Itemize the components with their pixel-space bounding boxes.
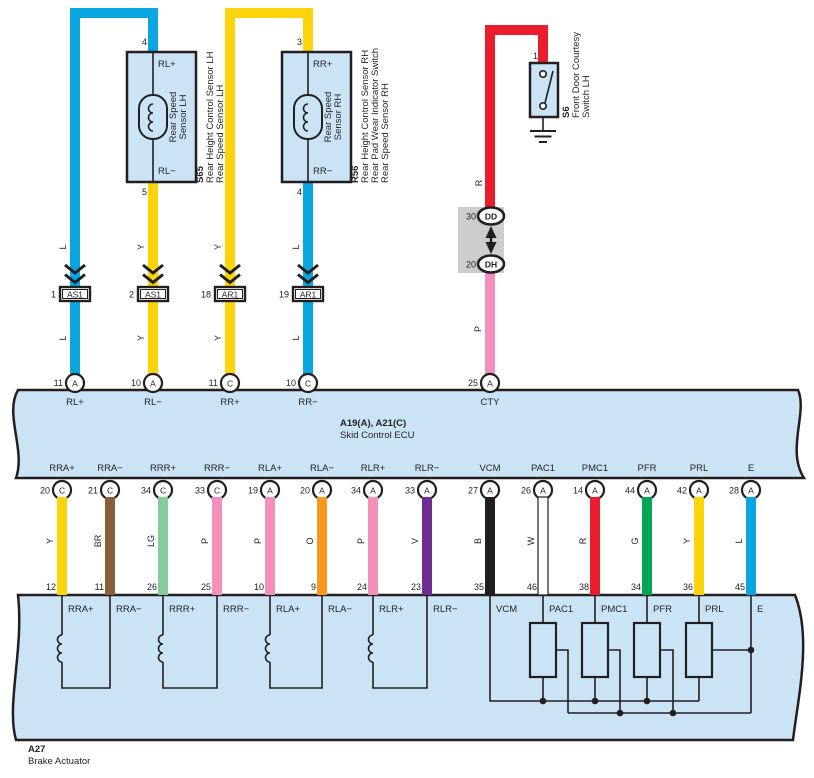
- wire-color-code: Y: [45, 538, 55, 544]
- ecu-terminal-label: RR+: [220, 397, 240, 408]
- sensor-box-label: Rear Speed Sensor LH: [168, 92, 189, 143]
- wire-color-code: B: [473, 538, 483, 544]
- switch-contact-top: [540, 71, 546, 77]
- sensor-terminal-bottom: RL−: [158, 166, 176, 177]
- ecu-pin-number: 11: [209, 378, 218, 388]
- ecu-pin-number: 20: [300, 486, 310, 496]
- actuator-pin-number: 26: [147, 582, 157, 592]
- ecu-pin-number: 34: [141, 486, 151, 496]
- resistor-box-pmc1: [582, 623, 608, 677]
- sensor-pin-top: 3: [297, 37, 302, 47]
- ecu-pin-number: 11: [54, 378, 63, 388]
- ecu-pin-connector-letter: A: [644, 486, 650, 496]
- ecu-terminal-label: PAC1: [531, 463, 555, 474]
- actuator-terminal-label: RRR+: [169, 604, 196, 615]
- actuator-pin-number: 24: [357, 582, 367, 592]
- resistor-box-pfr: [634, 623, 660, 677]
- ecu-pin-connector-letter: C: [107, 486, 113, 496]
- wire: [538, 497, 548, 595]
- ecu-terminal-label: RL+: [66, 397, 84, 408]
- wire-color-code: P: [473, 326, 483, 332]
- ecu-pin-number: 10: [286, 378, 296, 388]
- actuator-pin-number: 23: [411, 582, 421, 592]
- ecu-pin-connector-letter: C: [227, 379, 233, 389]
- ecu-pin-number: 33: [195, 486, 205, 496]
- sensor-box-label-line2: Sensor RH: [333, 94, 344, 141]
- actuator-pin-number: 46: [527, 582, 537, 592]
- ecu-terminal-label: PRL: [690, 463, 708, 474]
- ecu-pin-connector-letter: A: [487, 379, 493, 389]
- actuator-pin-number: 35: [474, 582, 484, 592]
- wire-color-code: W: [526, 536, 536, 545]
- actuator-pin-number: 34: [631, 582, 641, 592]
- wire: [158, 497, 168, 595]
- wire: [694, 497, 704, 595]
- connector-pin-number: 18: [201, 290, 211, 300]
- ecu-terminal-label: RLA+: [258, 463, 282, 474]
- wiring-diagram: A19(A), A21(C) Skid Control ECU 11 A RL+…: [0, 0, 814, 773]
- sensor-desc-line3: Rear Speed Sensor RH: [380, 83, 391, 183]
- connector-pin-number: 2: [129, 290, 134, 300]
- actuator-pin-number: 36: [683, 582, 693, 592]
- sensor-terminal-bottom: RR−: [313, 166, 333, 177]
- actuator-terminal-label: RRA−: [116, 604, 142, 615]
- wire-color-code: L: [58, 244, 68, 249]
- wire-color-code: LG: [146, 535, 156, 547]
- ecu-pin-number: 20: [40, 486, 50, 496]
- actuator-pin-number: 11: [95, 582, 104, 592]
- resistor-box-prl: [686, 623, 712, 677]
- wire: [422, 497, 432, 595]
- sensor-box-label: Rear Speed Sensor RH: [323, 92, 344, 143]
- wire-color-code: Y: [213, 335, 223, 341]
- actuator-pin-number: 9: [311, 582, 316, 592]
- ecu-pin-connector-letter: A: [696, 486, 702, 496]
- wire-color-code: V: [410, 538, 420, 544]
- wire: [317, 497, 327, 595]
- ecu-pin-connector-letter: A: [150, 379, 156, 389]
- ecu-pin-connector-letter: A: [370, 486, 376, 496]
- wire-color-code: R: [474, 179, 484, 186]
- connector-pin-number: 1: [51, 290, 56, 300]
- rear-speed-sensor-lh: 4 RL+ RL− 5 Rear Speed Sensor LH S65 Rea…: [127, 37, 226, 197]
- sensor-pin-bottom: 4: [297, 187, 302, 197]
- actuator-pin-number: 25: [201, 582, 211, 592]
- ecu-terminal-label: CTY: [481, 397, 501, 408]
- wire: [642, 497, 652, 595]
- switch-pin-number: 1: [533, 51, 538, 61]
- wire-color-code: G: [630, 537, 640, 544]
- ecu-title: A19(A), A21(C): [340, 418, 406, 429]
- wire-color-code: Y: [213, 244, 223, 250]
- ecu-terminal-label: RLR+: [361, 463, 386, 474]
- ecu-terminal-label: E: [748, 463, 754, 474]
- junction-dot: [540, 698, 547, 705]
- actuator-name: Brake Actuator: [28, 756, 90, 767]
- junction-oval-label: DD: [485, 212, 497, 222]
- junction-dot: [617, 710, 624, 717]
- actuator-pin-number: 45: [735, 582, 745, 592]
- ecu-pin-connector-letter: A: [424, 486, 430, 496]
- wire-color-code: L: [58, 335, 68, 340]
- junction-dot: [592, 698, 599, 705]
- junction-oval-label: DH: [485, 260, 497, 270]
- ecu-pin-number: 26: [521, 486, 531, 496]
- ecu-terminal-label: PMC1: [582, 463, 608, 474]
- wire-color-code: Y: [136, 244, 146, 250]
- switch-desc-line2: Switch LH: [581, 75, 592, 118]
- ecu-pin-connector-letter: C: [305, 379, 311, 389]
- actuator-code: A27: [28, 744, 45, 755]
- actuator-terminal-label: PFR: [653, 604, 672, 615]
- ecu-pin-connector-letter: C: [59, 486, 65, 496]
- actuator-terminal-label: RLR+: [379, 604, 404, 615]
- wire: [590, 497, 600, 595]
- ecu-terminal-label: RRR−: [204, 463, 231, 474]
- ecu-pin-number: 44: [625, 486, 635, 496]
- ecu-pin-connector-letter: A: [267, 486, 273, 496]
- actuator-terminal-label: PAC1: [549, 604, 573, 615]
- actuator-terminal-label: RLR−: [433, 604, 458, 615]
- actuator-terminal-label: E: [757, 604, 763, 615]
- actuator-pin-number: 38: [579, 582, 589, 592]
- wire-color-code: Y: [682, 538, 692, 544]
- ecu-terminal-label: RRA−: [97, 463, 123, 474]
- wire: [105, 497, 115, 595]
- actuator-terminal-label: RLA−: [328, 604, 352, 615]
- ecu-terminal-label: RRR+: [150, 463, 177, 474]
- ecu-pin-connector-letter: C: [214, 486, 220, 496]
- ecu-pin-number: 10: [131, 378, 141, 388]
- actuator-pin-number: 10: [254, 582, 264, 592]
- ecu-pin-connector-letter: A: [72, 379, 78, 389]
- ecu-pin-number: 21: [88, 486, 98, 496]
- wire-color-code: L: [734, 538, 744, 543]
- connector-label: AS1: [145, 290, 161, 300]
- wiring-diagram-page: A19(A), A21(C) Skid Control ECU 11 A RL+…: [0, 0, 814, 773]
- wire-color-code: BR: [93, 534, 103, 547]
- wire-color-code: P: [253, 538, 263, 544]
- sensor-pin-top: 4: [142, 37, 147, 47]
- connector-label: AS1: [67, 290, 83, 300]
- ecu-pin-connector-letter: A: [319, 486, 325, 496]
- ecu-terminal-label: PFR: [638, 463, 657, 474]
- resistor-box-pac1: [530, 623, 556, 677]
- ecu-subtitle: Skid Control ECU: [340, 430, 415, 441]
- wire-color-code: R: [578, 537, 588, 544]
- actuator-band: [13, 595, 803, 740]
- ecu-pin-number: 42: [677, 486, 687, 496]
- ecu-pin-number: 27: [468, 486, 478, 496]
- sensor-box-label-line2: Sensor LH: [178, 94, 189, 139]
- connector-label: AR1: [222, 290, 239, 300]
- ecu-pin-connector-letter: A: [592, 486, 598, 496]
- ecu-terminal-label: RL−: [144, 397, 162, 408]
- wire: [265, 497, 275, 595]
- actuator-terminal-label: PRL: [705, 604, 723, 615]
- ecu-pin-number: 34: [351, 486, 361, 496]
- ecu-terminal-label: RRA+: [49, 463, 75, 474]
- wire-color-code: Y: [136, 335, 146, 341]
- wire-color-code: L: [291, 335, 301, 340]
- ecu-pin-number: 25: [468, 378, 478, 388]
- junction-pin-number: 20: [466, 260, 476, 270]
- wire: [485, 497, 495, 595]
- ecu-pin-number: 14: [573, 486, 583, 496]
- sensor-terminal-top: RL+: [158, 59, 176, 70]
- junction-dot: [644, 698, 651, 705]
- ecu-terminal-label: RLR−: [415, 463, 440, 474]
- wire: [57, 497, 67, 595]
- ecu-terminal-label: VCM: [479, 463, 500, 474]
- wire-color-code: P: [200, 538, 210, 544]
- junction-block-dd-dh: DD 30 DH 20: [458, 207, 504, 273]
- ecu-terminal-label: RLA−: [310, 463, 334, 474]
- actuator-terminal-label: RLA+: [276, 604, 300, 615]
- ecu-pin-number: 19: [248, 486, 258, 496]
- junction-dot: [670, 710, 677, 717]
- sensor-pin-bottom: 5: [142, 187, 147, 197]
- ecu-pin-number: 28: [729, 486, 739, 496]
- wire-color-code: P: [356, 538, 366, 544]
- ecu-terminal-label: RR−: [298, 397, 318, 408]
- rear-speed-sensor-rh: 3 RR+ RR− 4 Rear Speed Sensor RH R56 Rea…: [282, 37, 391, 197]
- sensor-desc-line2: Rear Speed Sensor LH: [215, 85, 226, 183]
- connector-label: AR1: [300, 290, 317, 300]
- ecu-pin-connector-letter: C: [160, 486, 166, 496]
- ecu-pin-connector-letter: A: [540, 486, 546, 496]
- connector-pin-number: 19: [279, 290, 289, 300]
- actuator-terminal-label: RRR−: [223, 604, 250, 615]
- actuator-pin-number: 12: [46, 582, 56, 592]
- ecu-pin-connector-letter: A: [487, 486, 493, 496]
- actuator-terminal-label: VCM: [496, 604, 517, 615]
- ecu-pin-connector-letter: A: [748, 486, 754, 496]
- junction-pin-number: 30: [466, 212, 476, 222]
- junction-dot: [748, 647, 755, 654]
- wire-color-code: O: [305, 537, 315, 544]
- switch-contact-bottom: [540, 103, 546, 109]
- wire: [368, 497, 378, 595]
- actuator-terminal-label: RRA+: [68, 604, 94, 615]
- wire: [212, 497, 222, 595]
- ecu-pin-number: 33: [405, 486, 415, 496]
- wire: [746, 497, 756, 595]
- actuator-terminal-label: PMC1: [601, 604, 627, 615]
- sensor-terminal-top: RR+: [313, 59, 333, 70]
- wire-color-code: L: [291, 244, 301, 249]
